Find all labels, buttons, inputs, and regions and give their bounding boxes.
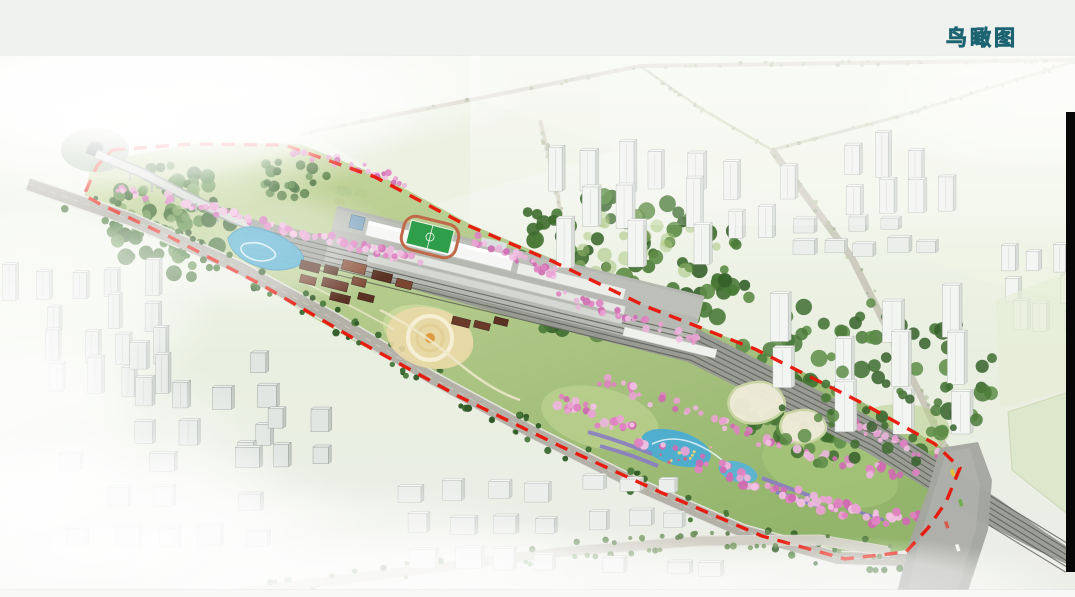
right-crop-bar xyxy=(1066,112,1075,572)
lawn-mound xyxy=(728,382,784,424)
page-title: 鸟瞰图 xyxy=(946,28,1018,50)
birdseye-rendering-page: 鸟瞰图 xyxy=(0,0,1075,597)
aerial-rendering-scene xyxy=(0,0,1075,597)
top-margin xyxy=(0,0,1075,55)
bottom-margin xyxy=(0,590,1075,597)
